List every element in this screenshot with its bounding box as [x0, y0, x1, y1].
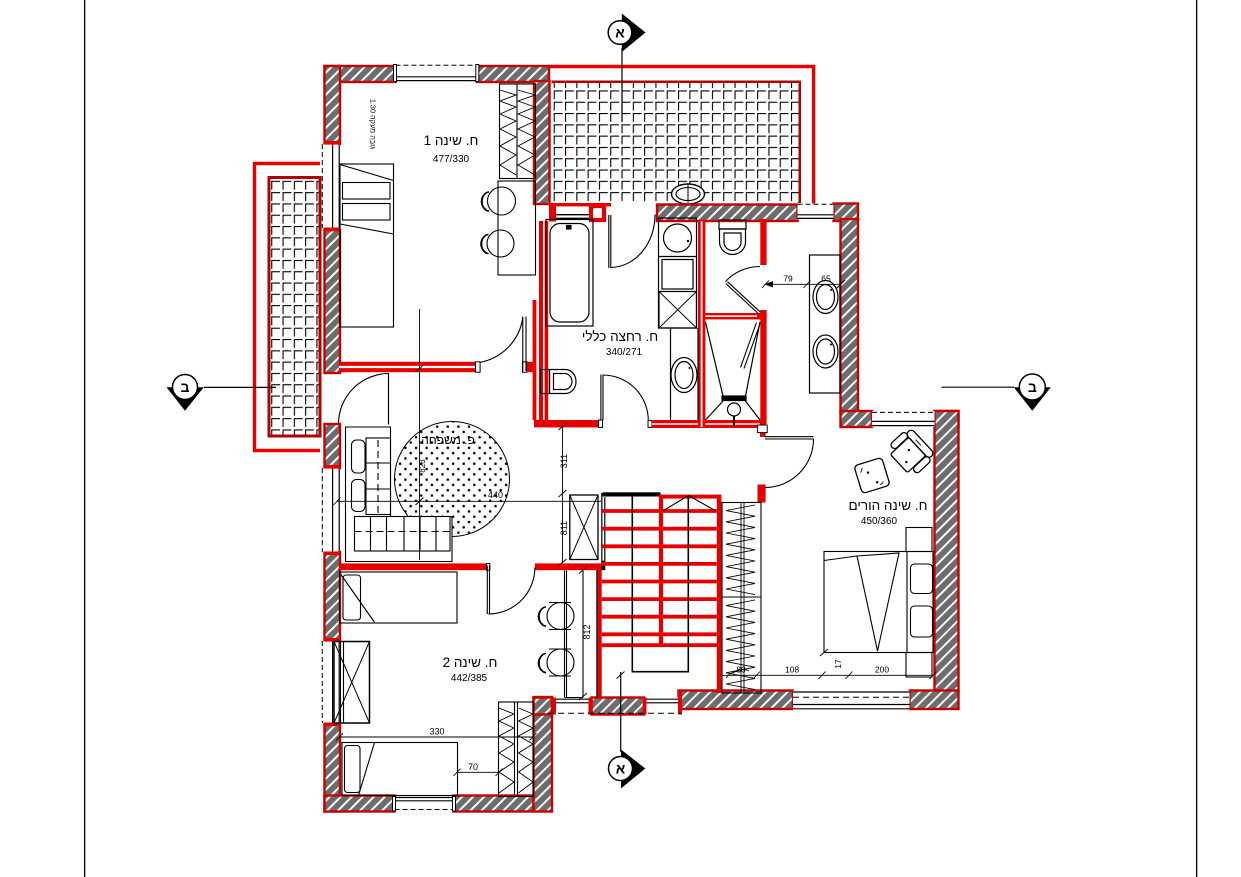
svg-text:65: 65: [821, 274, 831, 284]
svg-text:א: א: [616, 761, 626, 777]
svg-text:79: 79: [783, 274, 793, 284]
svg-text:ב: ב: [181, 379, 190, 395]
svg-text:823: 823: [418, 459, 427, 473]
svg-text:811: 811: [559, 521, 569, 535]
svg-text:340/271: 340/271: [606, 347, 643, 358]
svg-text:80: 80: [736, 665, 746, 675]
svg-text:גובה מעקה 1.30: גובה מעקה 1.30: [369, 99, 378, 149]
svg-text:ח. רחצה כללי: ח. רחצה כללי: [582, 329, 658, 344]
svg-text:330: 330: [429, 727, 444, 737]
svg-text:450/360: 450/360: [861, 516, 898, 527]
svg-text:70: 70: [468, 762, 478, 772]
svg-text:א: א: [615, 25, 625, 41]
svg-text:812: 812: [582, 624, 592, 639]
svg-text:200: 200: [875, 665, 889, 675]
svg-text:311: 311: [559, 454, 569, 468]
svg-text:ח. שינה 2: ח. שינה 2: [443, 655, 498, 670]
svg-text:477/330: 477/330: [433, 154, 470, 165]
svg-text:ב: ב: [1028, 379, 1037, 395]
svg-text:440: 440: [488, 490, 503, 500]
svg-text:ח. שינה הורים: ח. שינה הורים: [849, 498, 928, 513]
svg-text:442/385: 442/385: [451, 673, 488, 684]
svg-text:פ. משפחה: פ. משפחה: [421, 433, 475, 447]
svg-text:108: 108: [785, 665, 799, 675]
svg-text:17: 17: [833, 659, 843, 669]
svg-text:ח. שינה 1: ח. שינה 1: [424, 133, 479, 148]
